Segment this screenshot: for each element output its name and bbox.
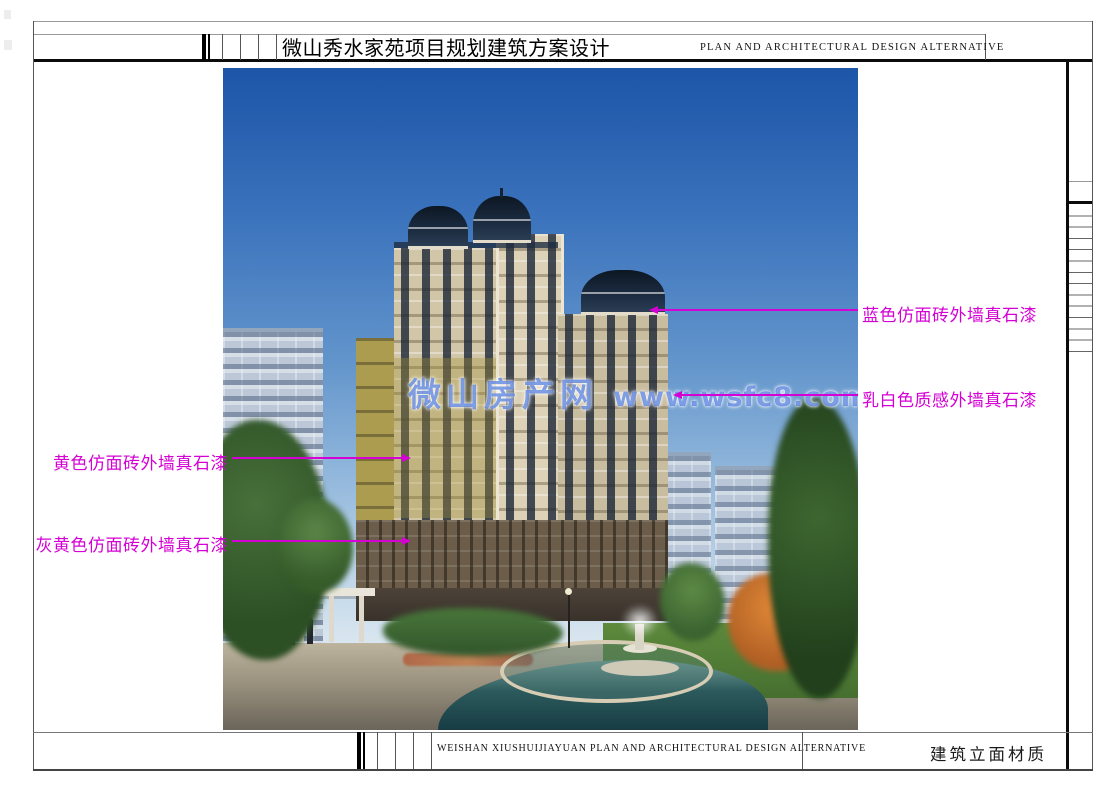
pergola-column	[359, 596, 364, 642]
leader-line-blue-tile	[656, 309, 858, 311]
annotation-label-gray-yellow-brick: 灰黄色仿面砖外墙真石漆	[18, 531, 228, 556]
lamp-post	[568, 593, 570, 648]
fountain-spray	[621, 604, 659, 638]
footer-sheet-name: 建筑立面材质	[930, 741, 1047, 765]
watermark: 微山房产网 www.wsfc8.com	[408, 368, 858, 416]
leader-line-milky-white	[680, 394, 858, 396]
footer-barcode-cell-line	[413, 732, 414, 769]
footer-band-top-line	[33, 732, 1093, 733]
sheet-title-english: PLAN AND ARCHITECTURAL DESIGN ALTERNATIV…	[700, 42, 982, 53]
header-barcode-cell-line	[258, 34, 259, 60]
edge-mark	[4, 40, 12, 50]
building-roof-cap-center	[473, 196, 531, 243]
hedge-center	[383, 608, 563, 656]
footer-barcode-cell-line	[431, 732, 432, 769]
annotation-label-yellow-brick: 黄色仿面砖外墙真石漆	[30, 449, 228, 474]
footer-barcode-bar	[363, 732, 365, 769]
arrowhead-yellow-brick	[402, 454, 411, 462]
footer-divider-line	[802, 732, 803, 769]
header-barcode-cell-line	[240, 34, 241, 60]
leader-line-gray-yellow-brick	[232, 540, 404, 542]
header-barcode-bar	[208, 34, 210, 60]
watermark-url: www.wsfc8.com	[613, 382, 858, 413]
footer-barcode-cell-line	[395, 732, 396, 769]
right-strip-row-cells	[1069, 205, 1092, 352]
arrowhead-blue-tile	[649, 306, 658, 314]
watermark-site-name: 微山房产网	[408, 375, 598, 414]
building-finial	[500, 188, 503, 198]
header-barcode-thick-bar	[202, 34, 206, 60]
frame-left-line	[33, 21, 34, 771]
leader-line-yellow-brick	[232, 457, 404, 459]
sheet-title-chinese: 微山秀水家苑项目规划建筑方案设计	[282, 35, 610, 61]
annotation-label-milky-white: 乳白色质感外墙真石漆	[862, 386, 1037, 411]
footer-barcode-thick-bar	[357, 732, 361, 769]
arrowhead-gray-yellow-brick	[402, 537, 411, 545]
fountain-basin	[601, 660, 679, 676]
annotation-label-blue-tile: 蓝色仿面砖外墙真石漆	[862, 301, 1037, 326]
arrowhead-milky-white	[673, 391, 682, 399]
header-barcode-cell-line	[222, 34, 223, 60]
header-barcode-cell-line	[276, 34, 277, 60]
rendering-image: 微山房产网 www.wsfc8.com	[223, 68, 858, 730]
edge-mark	[4, 10, 11, 19]
pergola-column	[329, 596, 334, 642]
lamp-globe	[565, 588, 572, 595]
frame-bottom-line	[33, 769, 1093, 771]
footer-barcode-cell-line	[377, 732, 378, 769]
right-strip-thick-divider	[1066, 201, 1092, 204]
drawing-sheet-page: 微山秀水家苑项目规划建筑方案设计 PLAN AND ARCHITECTURAL …	[0, 0, 1118, 791]
right-strip-divider	[1069, 181, 1092, 182]
frame-right-line	[1092, 21, 1093, 771]
building-roof-cap-left	[408, 206, 468, 249]
frame-top-line	[33, 21, 1093, 22]
tree-mid-right	[660, 563, 725, 641]
right-strip-thick-line	[1066, 60, 1069, 770]
tree-left-small	[278, 498, 353, 593]
